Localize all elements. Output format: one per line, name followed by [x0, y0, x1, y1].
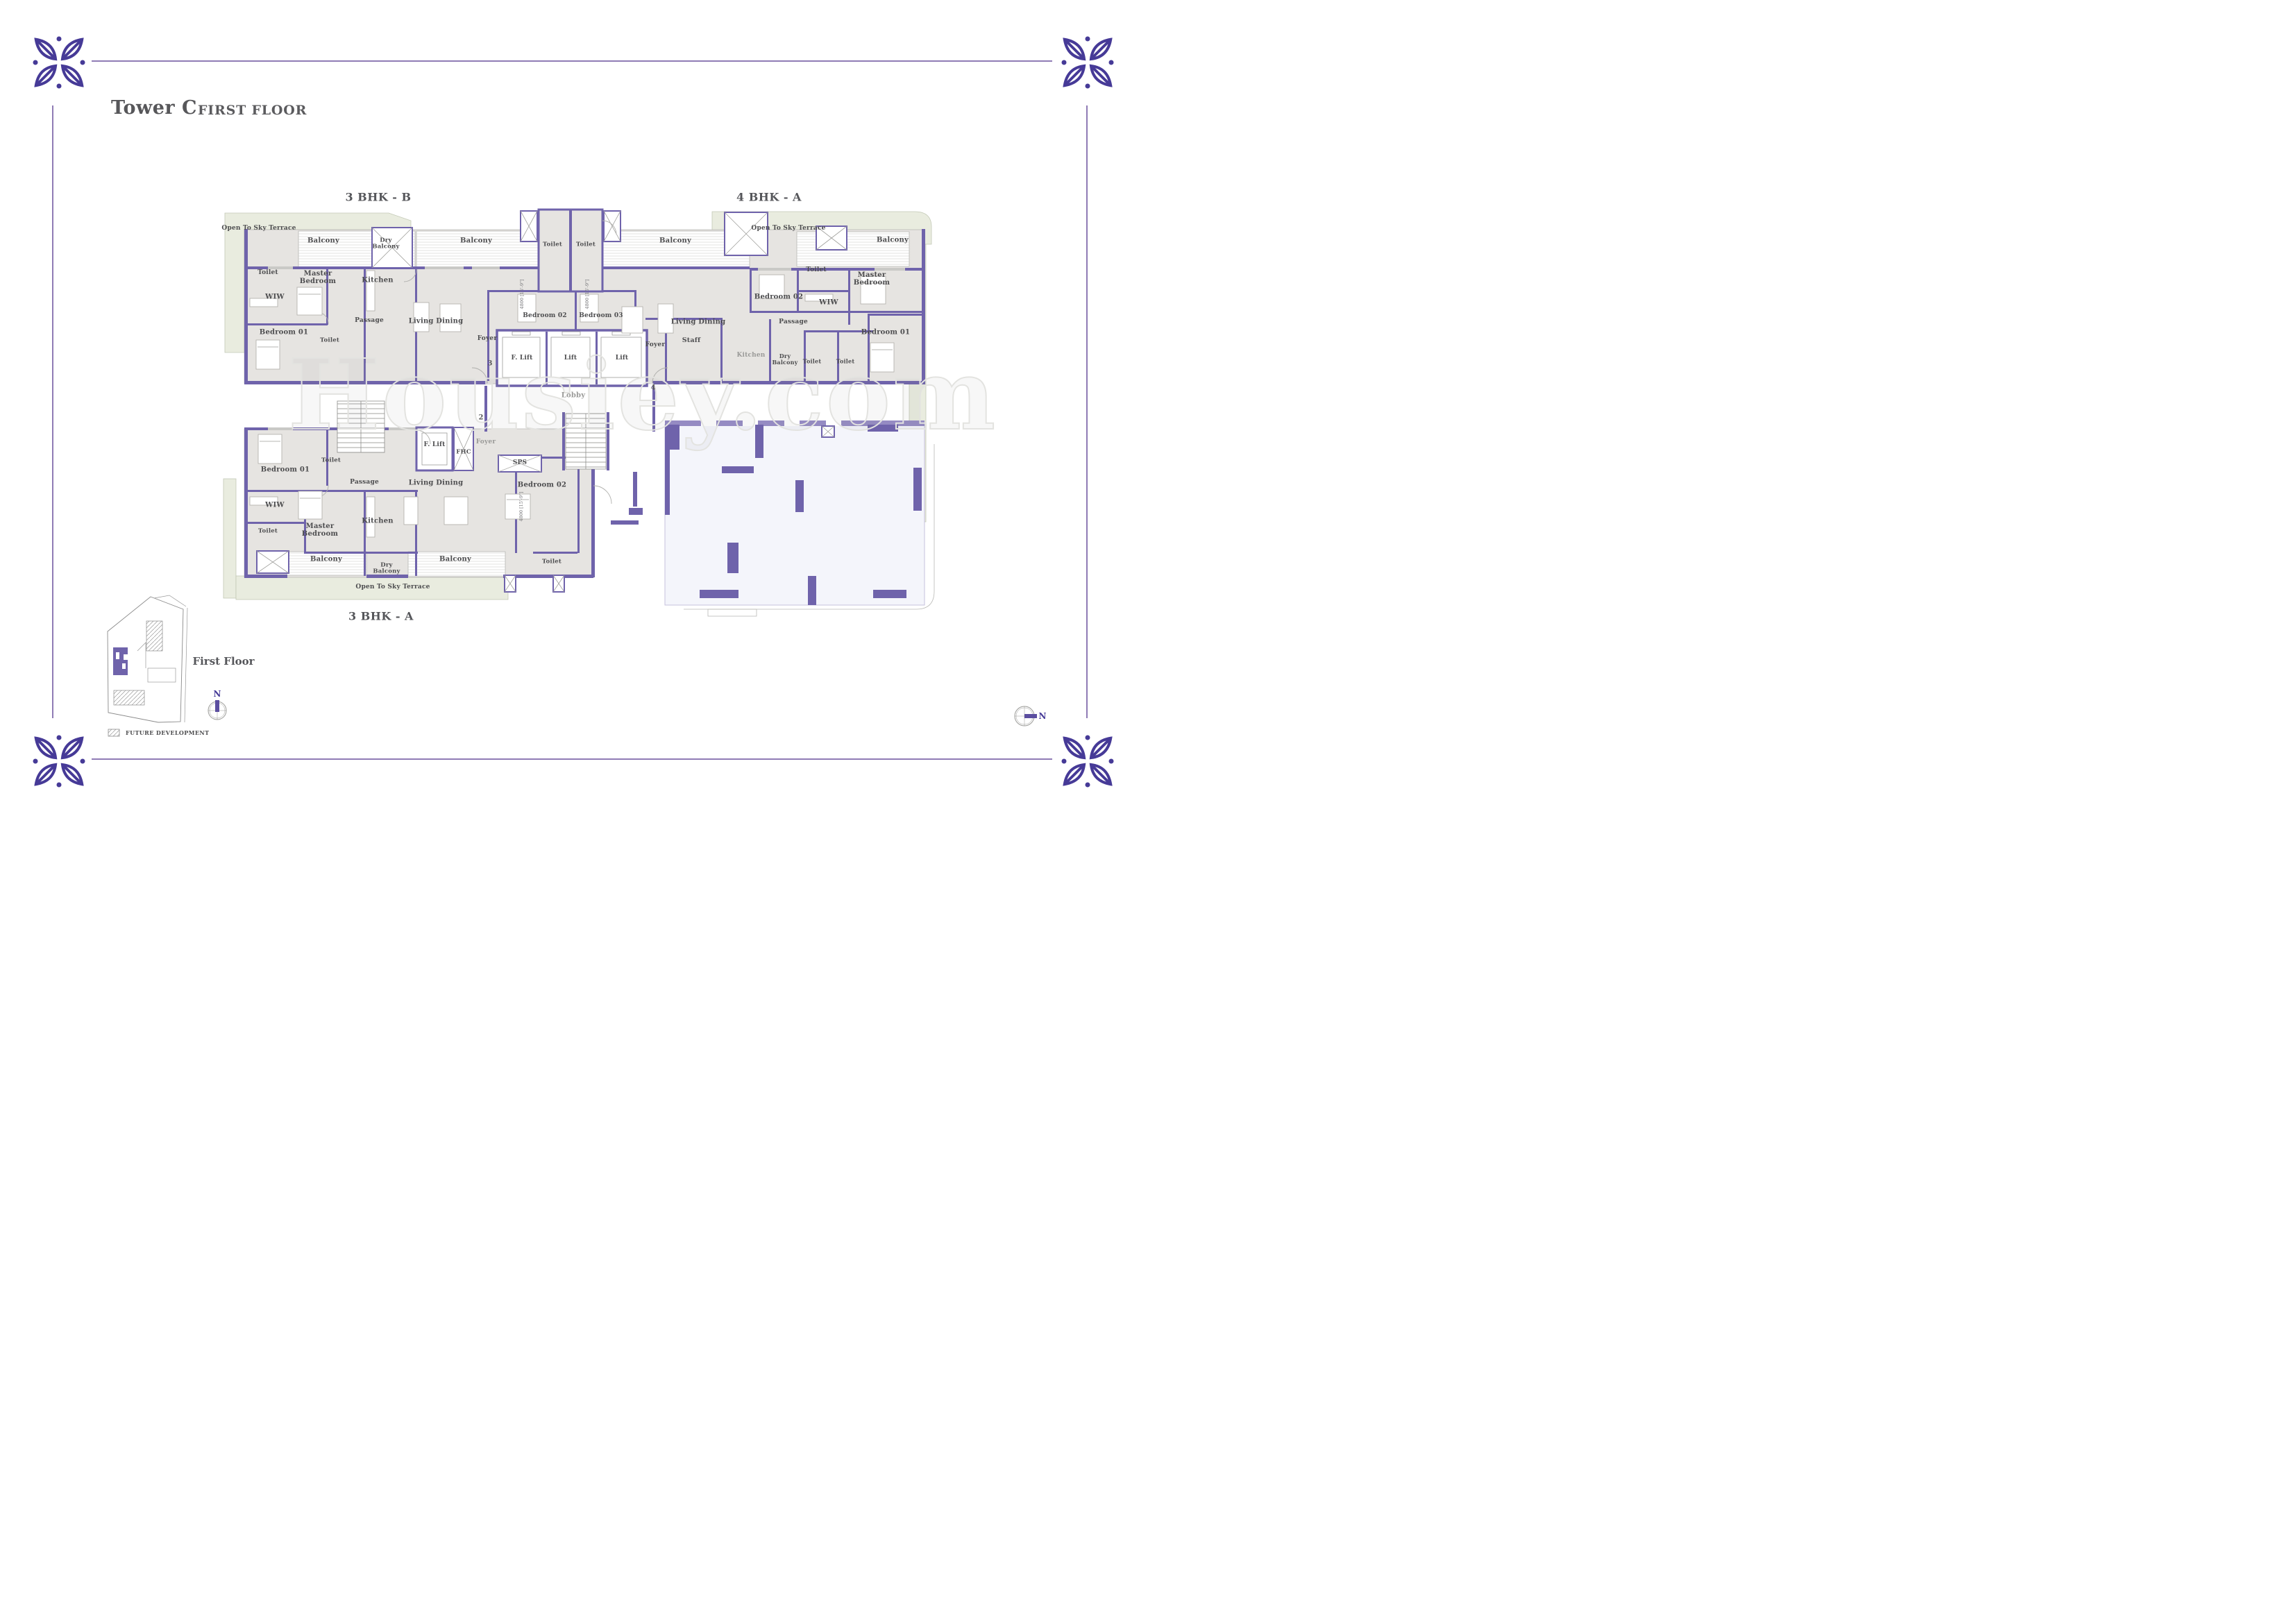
page-subtitle: FIRST FLOOR [198, 103, 307, 118]
room-label: Living Dining [671, 318, 726, 326]
room-label: WIW [265, 502, 285, 509]
room-label: Passage [355, 318, 384, 325]
room-label: Dry Balcony [371, 563, 403, 576]
dimension-label: 4800 [15'-9"] [518, 491, 524, 521]
room-label: Toilet [321, 457, 341, 464]
room-label: Toilet [836, 359, 854, 365]
room-label: Bedroom 03 [579, 313, 623, 320]
room-label: Balcony [310, 556, 342, 563]
room-label: F. Lift [424, 442, 446, 449]
room-label: Toilet [806, 267, 827, 274]
marker-4: 4 [651, 384, 656, 392]
room-label: Bedroom 01 [260, 329, 308, 337]
watermark: Housiey.com [288, 339, 997, 452]
north-label-left: N [214, 689, 221, 699]
floor-plan-page: Housiey.com Tower C FIRST FLOOR 3 BHK - … [0, 0, 1148, 812]
room-label: Passage [779, 319, 808, 326]
room-label: Toilet [258, 528, 278, 534]
top-toilet-block [539, 210, 602, 291]
room-label: Open To Sky Terrace [751, 226, 825, 232]
room-label: Bedroom 02 [523, 313, 567, 320]
unit-label-4bhk-a: 4 BHK - A [736, 191, 802, 204]
room-label: Passage [350, 479, 379, 486]
room-label: Living Dining [409, 479, 464, 487]
room-label: Bedroom 01 [261, 466, 310, 474]
room-label: Open To Sky Terrace [355, 584, 430, 591]
compass-right [1015, 706, 1037, 726]
room-label: Balcony [659, 237, 691, 245]
unit-label-3bhk-b: 3 BHK - B [345, 191, 411, 204]
room-label: Toilet [803, 359, 821, 365]
room-label: WIW [819, 299, 838, 307]
room-label: Staff [682, 337, 701, 344]
room-label: Balcony [877, 237, 909, 244]
room-label: Master Bedroom [850, 271, 893, 287]
room-label: Master Bedroom [296, 270, 339, 285]
room-label: Balcony [307, 237, 339, 245]
marker-2: 2 [479, 414, 484, 422]
marker-3: 3 [488, 360, 493, 368]
room-label: FHC [456, 449, 471, 455]
room-label: Open To Sky Terrace [221, 226, 296, 232]
dimension-label: 4800 [15'-9"] [584, 279, 590, 309]
key-plan [108, 595, 187, 736]
room-label: Foyer [645, 342, 666, 349]
room-label: Bedroom 02 [754, 294, 803, 301]
room-label: Lobby [562, 392, 586, 400]
room-label: Toilet [258, 270, 278, 277]
room-label: WIW [265, 294, 285, 301]
room-label: Toilet [320, 337, 339, 343]
room-label: Balcony [439, 556, 471, 563]
room-label: Bedroom 01 [861, 329, 910, 337]
room-label: Dry Balcony [769, 353, 801, 366]
room-label: Toilet [542, 559, 562, 565]
room-label: Lift [616, 355, 629, 362]
unit-label-3bhk-a: 3 BHK - A [348, 610, 414, 623]
room-label: Balcony [460, 237, 492, 245]
room-label: Kitchen [362, 277, 394, 284]
dimension-label: 4800 [15'-9"] [519, 279, 525, 309]
room-label: Toilet [576, 241, 596, 248]
room-label: Kitchen [736, 352, 765, 359]
compass-left [208, 700, 226, 720]
key-plan-title: First Floor [192, 655, 254, 668]
room-label: SPS [513, 460, 527, 467]
legend-future-development: FUTURE DEVELOPMENT [126, 729, 210, 736]
room-label: Kitchen [362, 518, 394, 525]
room-label: Toilet [543, 241, 562, 248]
room-label: Foyer [478, 336, 498, 343]
room-label: Bedroom 02 [518, 482, 566, 489]
room-label: Lift [564, 355, 577, 362]
north-label-right: N [1039, 711, 1047, 721]
room-label: Master Bedroom [298, 522, 341, 538]
room-label: Foyer [476, 439, 496, 446]
room-label: F. Lift [512, 355, 533, 362]
room-label: Living Dining [409, 318, 464, 325]
page-title: Tower C [111, 97, 197, 119]
room-label: Dry Balcony [370, 238, 402, 251]
